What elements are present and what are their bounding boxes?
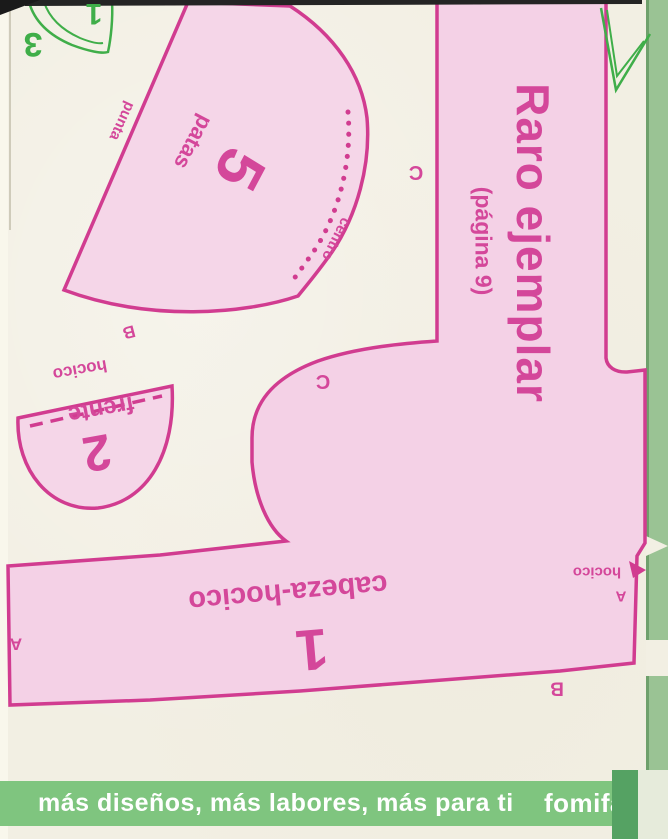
piece1-join-mark-b: B (550, 679, 564, 698)
piece1-join-mark-a-right: A (616, 589, 627, 604)
scan-left-crease (9, 0, 11, 230)
pattern-sheet: 3 1 punta patas 5 centro B hocico frente… (0, 0, 668, 839)
edge-strip-notch-2 (646, 640, 668, 676)
footer-tagline: más diseños, más labores, más para ti (38, 788, 514, 817)
footer-fold-light-edge (638, 770, 668, 839)
footer-banner: más diseños, más labores, más para ti fo… (0, 781, 612, 826)
sheet-subtitle: (página 9) (472, 187, 495, 296)
center-mark-c-upper: C (409, 162, 423, 182)
piece1-edge-label-hocico: hocico (573, 565, 621, 580)
corner-mark-3: 3 (24, 27, 43, 61)
piece1-number: 1 (293, 619, 330, 680)
scan-left-edge (0, 0, 8, 839)
center-mark-c-lower: C (316, 371, 330, 391)
corner-mark-1: 1 (86, 0, 103, 28)
sheet-title: Raro ejemplar (510, 83, 556, 403)
footer-fold-dark-band (612, 770, 638, 839)
piece1-join-mark-a-left: A (10, 636, 22, 653)
